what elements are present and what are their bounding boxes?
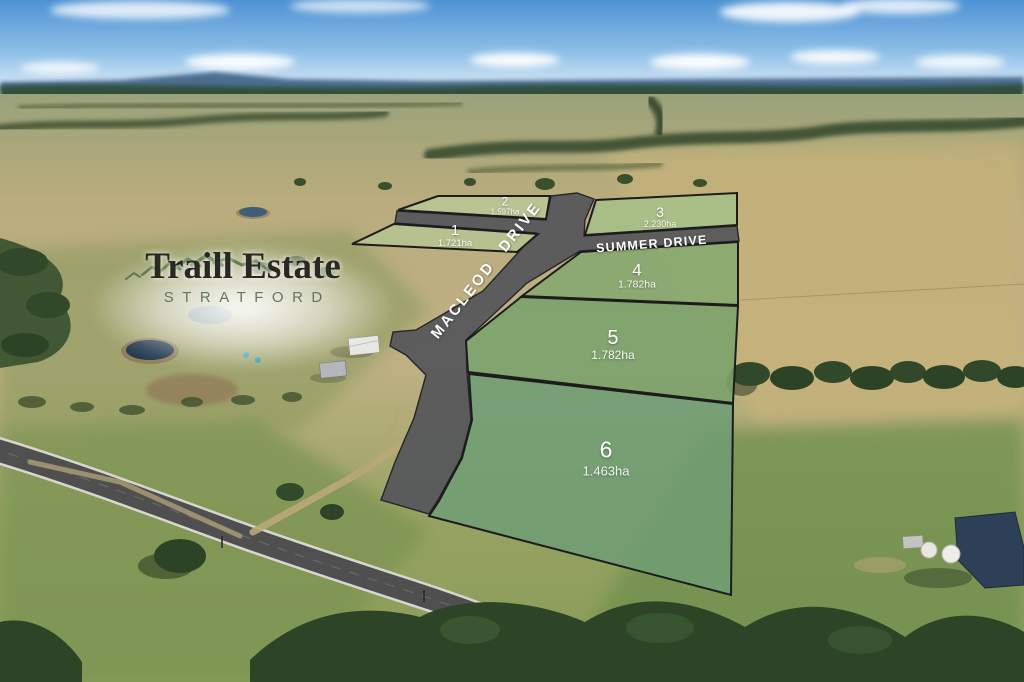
estate-name: Traill Estate bbox=[118, 248, 368, 285]
lot-6-polygon bbox=[429, 374, 733, 595]
estate-locality: STRATFORD bbox=[118, 289, 368, 306]
aerial-lot-map: 1 1.721ha 2 1.597ha 3 2.230ha 4 1.782ha … bbox=[0, 0, 1024, 682]
estate-logo: Traill Estate STRATFORD bbox=[118, 252, 368, 306]
